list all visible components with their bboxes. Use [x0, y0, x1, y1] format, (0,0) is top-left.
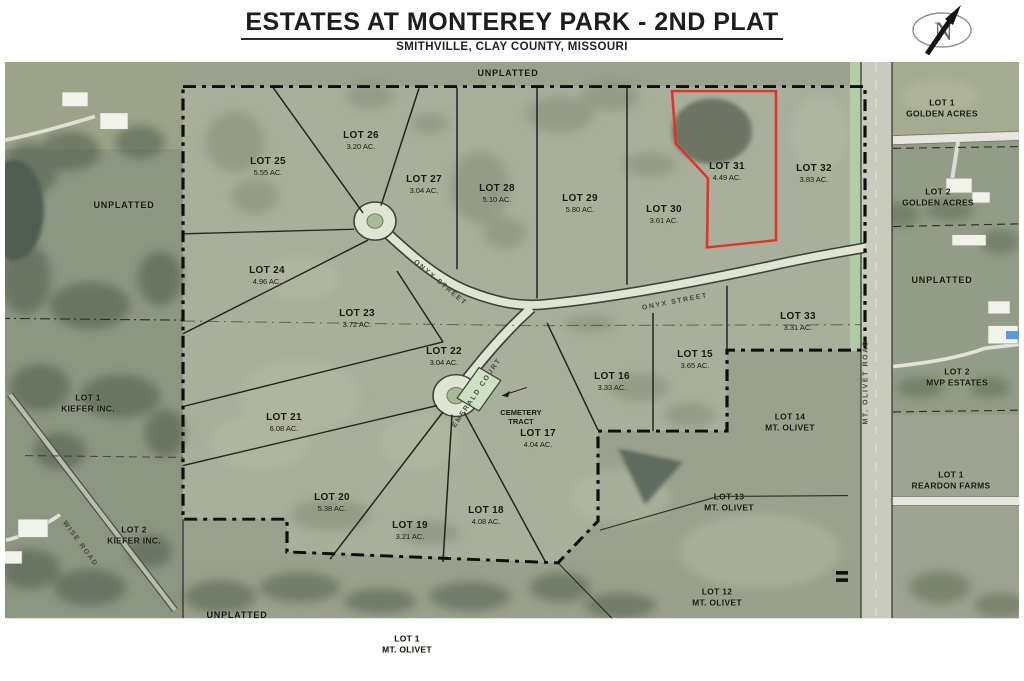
- lot-label-lot-16: LOT 163.33 AC.: [594, 371, 630, 392]
- neighbor-lot-label: LOT 1REARDON FARMS: [912, 469, 991, 490]
- neighbor-subdivision-name: KIEFER INC.: [61, 403, 115, 414]
- cemetery-label-line1: CEMETERY: [500, 408, 541, 417]
- neighbor-lot-name: LOT 2: [902, 186, 974, 197]
- lot-name: LOT 20: [314, 492, 350, 504]
- page-subtitle: SMITHVILLE, CLAY COUNTY, MISSOURI: [0, 41, 1024, 54]
- lot-name: LOT 27: [406, 174, 442, 186]
- lot-label-lot-20: LOT 205.38 AC.: [314, 492, 350, 513]
- street-name-label-onyx-street: ONYX STREET: [412, 259, 468, 307]
- lot-acreage: 5.38 AC.: [314, 503, 350, 512]
- neighbor-lot-name: LOT 1: [912, 469, 991, 480]
- lot-label-lot-24: LOT 244.96 AC.: [249, 265, 285, 286]
- lot-name: LOT 23: [339, 308, 375, 320]
- lot-name: LOT 29: [562, 193, 598, 205]
- neighbor-subdivision-name: MT. OLIVET: [765, 422, 815, 433]
- unplatted-label: UNPLATTED: [93, 201, 154, 211]
- lot-name: LOT 33: [780, 311, 816, 323]
- lot-name: LOT 24: [249, 265, 285, 277]
- unplatted-label: UNPLATTED: [477, 69, 538, 79]
- neighbor-lot-label: LOT 2GOLDEN ACRES: [902, 186, 974, 207]
- unplatted-label: UNPLATTED: [911, 276, 972, 286]
- neighbor-subdivision-name: KIEFER INC.: [107, 535, 161, 546]
- neighbor-lot-label: LOT 13MT. OLIVET: [704, 491, 754, 512]
- lot-acreage: 3.72 AC.: [339, 319, 375, 328]
- lot-acreage: 6.08 AC.: [266, 423, 302, 432]
- lot-name: LOT 22: [426, 346, 462, 358]
- lot-label-lot-28: LOT 285.10 AC.: [479, 183, 515, 204]
- neighbor-lot-name: LOT 1: [61, 392, 115, 403]
- street-name-label-mt-olivet-road: MT. OLIVET ROAD: [863, 339, 870, 424]
- street-name-label-emerald-court: EMERALD COURT: [451, 357, 503, 429]
- neighbor-subdivision-name: GOLDEN ACRES: [906, 108, 978, 119]
- lot-label-lot-33: LOT 333.31 AC.: [780, 311, 816, 332]
- neighbor-lot-name: LOT 2: [926, 366, 988, 377]
- neighbor-subdivision-name: GOLDEN ACRES: [902, 197, 974, 208]
- neighbor-lot-label: LOT 14MT. OLIVET: [765, 411, 815, 432]
- lot-name: LOT 19: [392, 520, 428, 532]
- neighbor-lot-label: LOT 1MT. OLIVET: [382, 633, 432, 654]
- unplatted-label: UNPLATTED: [206, 611, 267, 621]
- lot-name: LOT 15: [677, 349, 713, 361]
- lot-name: LOT 32: [796, 163, 832, 175]
- lot-label-lot-27: LOT 273.04 AC.: [406, 174, 442, 195]
- neighbor-lot-name: LOT 1: [382, 633, 432, 644]
- neighbor-subdivision-name: MT. OLIVET: [704, 502, 754, 513]
- lot-label-lot-22: LOT 223.04 AC.: [426, 346, 462, 367]
- lot-label-lot-18: LOT 184.08 AC.: [468, 505, 504, 526]
- lot-acreage: 3.31 AC.: [780, 322, 816, 331]
- lot-label-lot-25: LOT 255.55 AC.: [250, 156, 286, 177]
- page-title: ESTATES AT MONTEREY PARK - 2ND PLAT: [0, 9, 1024, 40]
- neighbor-lot-name: LOT 2: [107, 524, 161, 535]
- neighbor-lot-label: LOT 1GOLDEN ACRES: [906, 97, 978, 118]
- neighbor-subdivision-name: MT. OLIVET: [382, 644, 432, 655]
- neighbor-subdivision-name: MVP ESTATES: [926, 377, 988, 388]
- lot-acreage: 5.80 AC.: [562, 204, 598, 213]
- page-title-text: ESTATES AT MONTEREY PARK - 2ND PLAT: [241, 9, 782, 40]
- lot-label-lot-23: LOT 233.72 AC.: [339, 308, 375, 329]
- lot-acreage: 4.04 AC.: [520, 439, 556, 448]
- lot-acreage: 3.20 AC.: [343, 141, 379, 150]
- street-name-label-onyx-street: ONYX STREET: [641, 292, 708, 312]
- lot-acreage: 3.33 AC.: [594, 382, 630, 391]
- lot-name: LOT 31: [709, 161, 745, 173]
- lot-label-lot-21: LOT 216.08 AC.: [266, 412, 302, 433]
- header: ESTATES AT MONTEREY PARK - 2ND PLAT SMIT…: [0, 0, 1024, 62]
- lot-name: LOT 26: [343, 130, 379, 142]
- lot-name: LOT 28: [479, 183, 515, 195]
- neighbor-lot-label: LOT 12MT. OLIVET: [692, 586, 742, 607]
- neighbor-subdivision-name: REARDON FARMS: [912, 480, 991, 491]
- neighbor-lot-name: LOT 13: [704, 491, 754, 502]
- neighbor-lot-label: LOT 2KIEFER INC.: [107, 524, 161, 545]
- lot-acreage: 3.61 AC.: [646, 215, 682, 224]
- lot-acreage: 4.96 AC.: [249, 276, 285, 285]
- lot-name: LOT 30: [646, 204, 682, 216]
- lot-acreage: 4.08 AC.: [468, 516, 504, 525]
- neighbor-lot-label: LOT 1KIEFER INC.: [61, 392, 115, 413]
- neighbor-lot-label: LOT 2MVP ESTATES: [926, 366, 988, 387]
- lot-label-lot-29: LOT 295.80 AC.: [562, 193, 598, 214]
- street-name-label-wise-road: WISE ROAD: [61, 520, 99, 568]
- lot-label-lot-31: LOT 314.49 AC.: [709, 161, 745, 182]
- lot-label-lot-30: LOT 303.61 AC.: [646, 204, 682, 225]
- lot-acreage: 4.49 AC.: [709, 172, 745, 181]
- cemetery-label-line2: TRACT: [500, 417, 541, 426]
- lot-name: LOT 21: [266, 412, 302, 424]
- north-arrow-icon: N: [900, 3, 984, 59]
- neighbor-lot-name: LOT 14: [765, 411, 815, 422]
- lot-acreage: 3.83 AC.: [796, 174, 832, 183]
- lot-acreage: 3.04 AC.: [426, 357, 462, 366]
- lot-label-lot-15: LOT 153.65 AC.: [677, 349, 713, 370]
- lot-acreage: 5.55 AC.: [250, 167, 286, 176]
- lot-acreage: 3.65 AC.: [677, 360, 713, 369]
- lot-label-lot-26: LOT 263.20 AC.: [343, 130, 379, 151]
- map-labels-layer: CEMETERY TRACT LOT 255.55 AC.LOT 263.20 …: [0, 62, 1024, 681]
- lot-label-lot-17: LOT 174.04 AC.: [520, 428, 556, 449]
- lot-label-lot-19: LOT 193.21 AC.: [392, 520, 428, 541]
- lot-acreage: 5.10 AC.: [479, 194, 515, 203]
- lot-name: LOT 16: [594, 371, 630, 383]
- cemetery-tract-label: CEMETERY TRACT: [500, 408, 541, 426]
- lot-name: LOT 18: [468, 505, 504, 517]
- lot-name: LOT 17: [520, 428, 556, 440]
- lot-label-lot-32: LOT 323.83 AC.: [796, 163, 832, 184]
- lot-name: LOT 25: [250, 156, 286, 168]
- neighbor-subdivision-name: MT. OLIVET: [692, 597, 742, 608]
- neighbor-lot-name: LOT 1: [906, 97, 978, 108]
- lot-acreage: 3.21 AC.: [392, 531, 428, 540]
- neighbor-lot-name: LOT 12: [692, 586, 742, 597]
- lot-acreage: 3.04 AC.: [406, 185, 442, 194]
- plat-map-page: ESTATES AT MONTEREY PARK - 2ND PLAT SMIT…: [0, 0, 1024, 681]
